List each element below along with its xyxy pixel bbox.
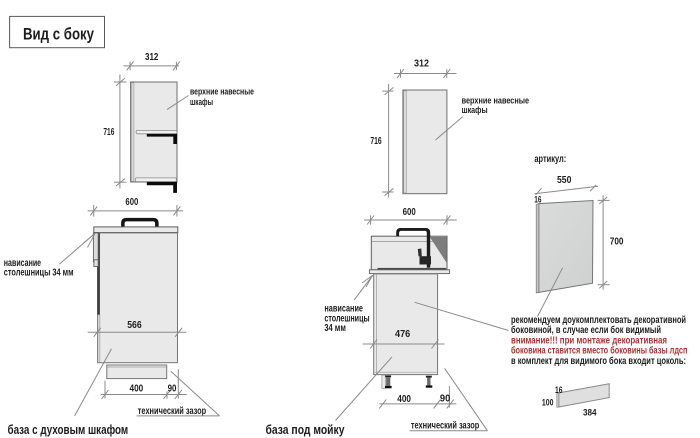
svg-text:шкафы: шкафы: [190, 97, 213, 108]
svg-text:90: 90: [440, 393, 451, 405]
svg-text:400: 400: [397, 393, 411, 405]
svg-text:476: 476: [395, 328, 410, 340]
svg-text:600: 600: [125, 197, 138, 208]
svg-text:384: 384: [583, 408, 597, 419]
svg-text:90: 90: [168, 383, 177, 395]
svg-text:база с духовым шкафом: база с духовым шкафом: [8, 422, 129, 437]
svg-text:технический зазор: технический зазор: [411, 421, 479, 432]
svg-text:база под мойку: база под мойку: [266, 422, 346, 437]
svg-text:16: 16: [534, 194, 541, 204]
svg-text:артикул:: артикул:: [534, 153, 566, 165]
svg-text:700: 700: [610, 236, 624, 248]
svg-text:400: 400: [130, 382, 144, 394]
svg-text:100: 100: [542, 398, 554, 409]
svg-text:шкафы: шкафы: [462, 105, 488, 116]
svg-text:600: 600: [403, 207, 417, 218]
svg-text:16: 16: [555, 385, 563, 396]
svg-text:312: 312: [414, 58, 429, 69]
svg-text:боковиной, в случае если бок в: боковиной, в случае если бок видимый: [511, 324, 661, 336]
svg-text:34 мм: 34 мм: [324, 323, 346, 334]
svg-text:Вид с боку: Вид с боку: [23, 26, 95, 44]
svg-text:312: 312: [145, 52, 159, 63]
svg-text:716: 716: [370, 136, 382, 147]
svg-text:столешницы 34 мм: столешницы 34 мм: [4, 268, 74, 279]
svg-text:716: 716: [103, 127, 114, 138]
svg-text:550: 550: [557, 174, 572, 186]
svg-text:в комплект для видимого бока в: в комплект для видимого бока входит цоко…: [511, 355, 686, 367]
svg-text:боковина ставится вместо боков: боковина ставится вместо боковины базы л…: [511, 345, 687, 357]
svg-text:566: 566: [127, 319, 142, 331]
svg-text:технический зазор: технический зазор: [138, 406, 206, 417]
